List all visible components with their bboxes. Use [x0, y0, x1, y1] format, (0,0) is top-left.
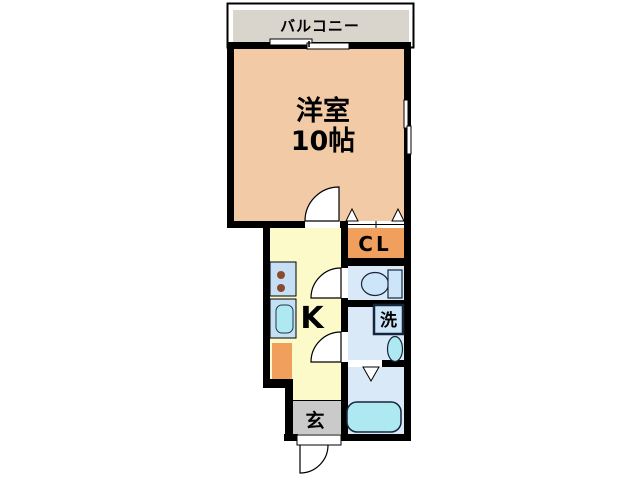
entrance-door-threshold — [297, 435, 341, 445]
kitchen-label: K — [300, 301, 325, 336]
closet-label: CL — [358, 232, 391, 256]
washing-machine-label: 洗 — [380, 310, 397, 331]
washbasin-icon — [388, 337, 403, 362]
wall-divider-vertical — [341, 221, 348, 441]
side-window-pane-bottom — [407, 126, 411, 154]
kitchen-floor-lower — [293, 379, 341, 400]
balcony-window-pane-left — [270, 39, 312, 45]
stove-burner-icon — [277, 284, 285, 292]
opening-main-kitchen — [305, 221, 340, 228]
bathtub-icon — [347, 402, 401, 432]
wall-closet-bottom — [341, 258, 411, 266]
wall-bottom-right-seg — [341, 434, 411, 441]
wall-kitchen-left — [263, 221, 270, 388]
wall-entrance-left — [285, 381, 293, 441]
toilet-fixtures — [362, 270, 403, 298]
toilet-tank-icon — [388, 270, 402, 298]
wall-bottom-left-seg — [284, 434, 298, 441]
refrigerator-space — [272, 343, 292, 379]
stove-burner-icon — [277, 271, 285, 279]
side-window-pane-top — [404, 100, 408, 128]
sink-basin-icon — [276, 305, 293, 333]
opening-toilet — [341, 268, 348, 298]
balcony-label: バルコニー — [280, 17, 360, 35]
wall-left-main — [227, 42, 234, 228]
opening-bathroom — [348, 360, 382, 367]
floorplan-canvas: 洗 バルコニー 洋室 10帖 CL K 玄 — [0, 0, 640, 480]
main-room-size-label: 10帖 — [291, 126, 356, 157]
balcony-window-pane-right — [307, 43, 349, 49]
opening-washroom — [341, 332, 348, 362]
entrance-label: 玄 — [305, 409, 324, 432]
toilet-bowl-icon — [362, 273, 389, 296]
main-room-label: 洋室 — [296, 95, 350, 127]
entrance-door-swing-icon — [300, 445, 328, 473]
floorplan-drawing: 洗 バルコニー 洋室 10帖 CL K 玄 — [0, 0, 640, 480]
